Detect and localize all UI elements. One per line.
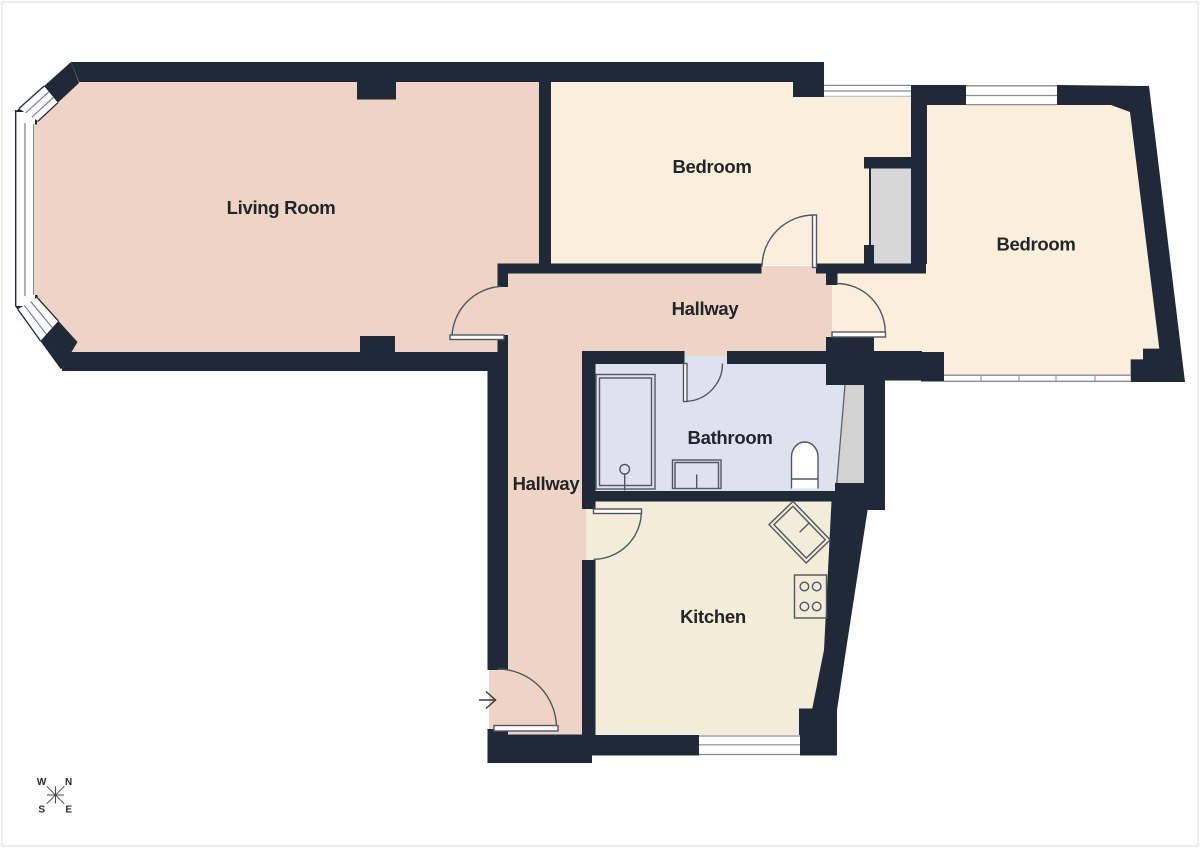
svg-text:Kitchen: Kitchen xyxy=(680,606,746,627)
svg-text:Hallway: Hallway xyxy=(672,298,740,319)
svg-text:N: N xyxy=(65,777,72,788)
svg-text:E: E xyxy=(65,805,72,816)
svg-text:S: S xyxy=(38,805,45,816)
svg-text:Living Room: Living Room xyxy=(227,197,336,218)
svg-text:Bathroom: Bathroom xyxy=(688,427,773,448)
svg-text:W: W xyxy=(37,777,47,788)
svg-text:Bedroom: Bedroom xyxy=(996,234,1075,255)
svg-text:Hallway: Hallway xyxy=(513,473,581,494)
svg-text:Bedroom: Bedroom xyxy=(672,156,751,177)
